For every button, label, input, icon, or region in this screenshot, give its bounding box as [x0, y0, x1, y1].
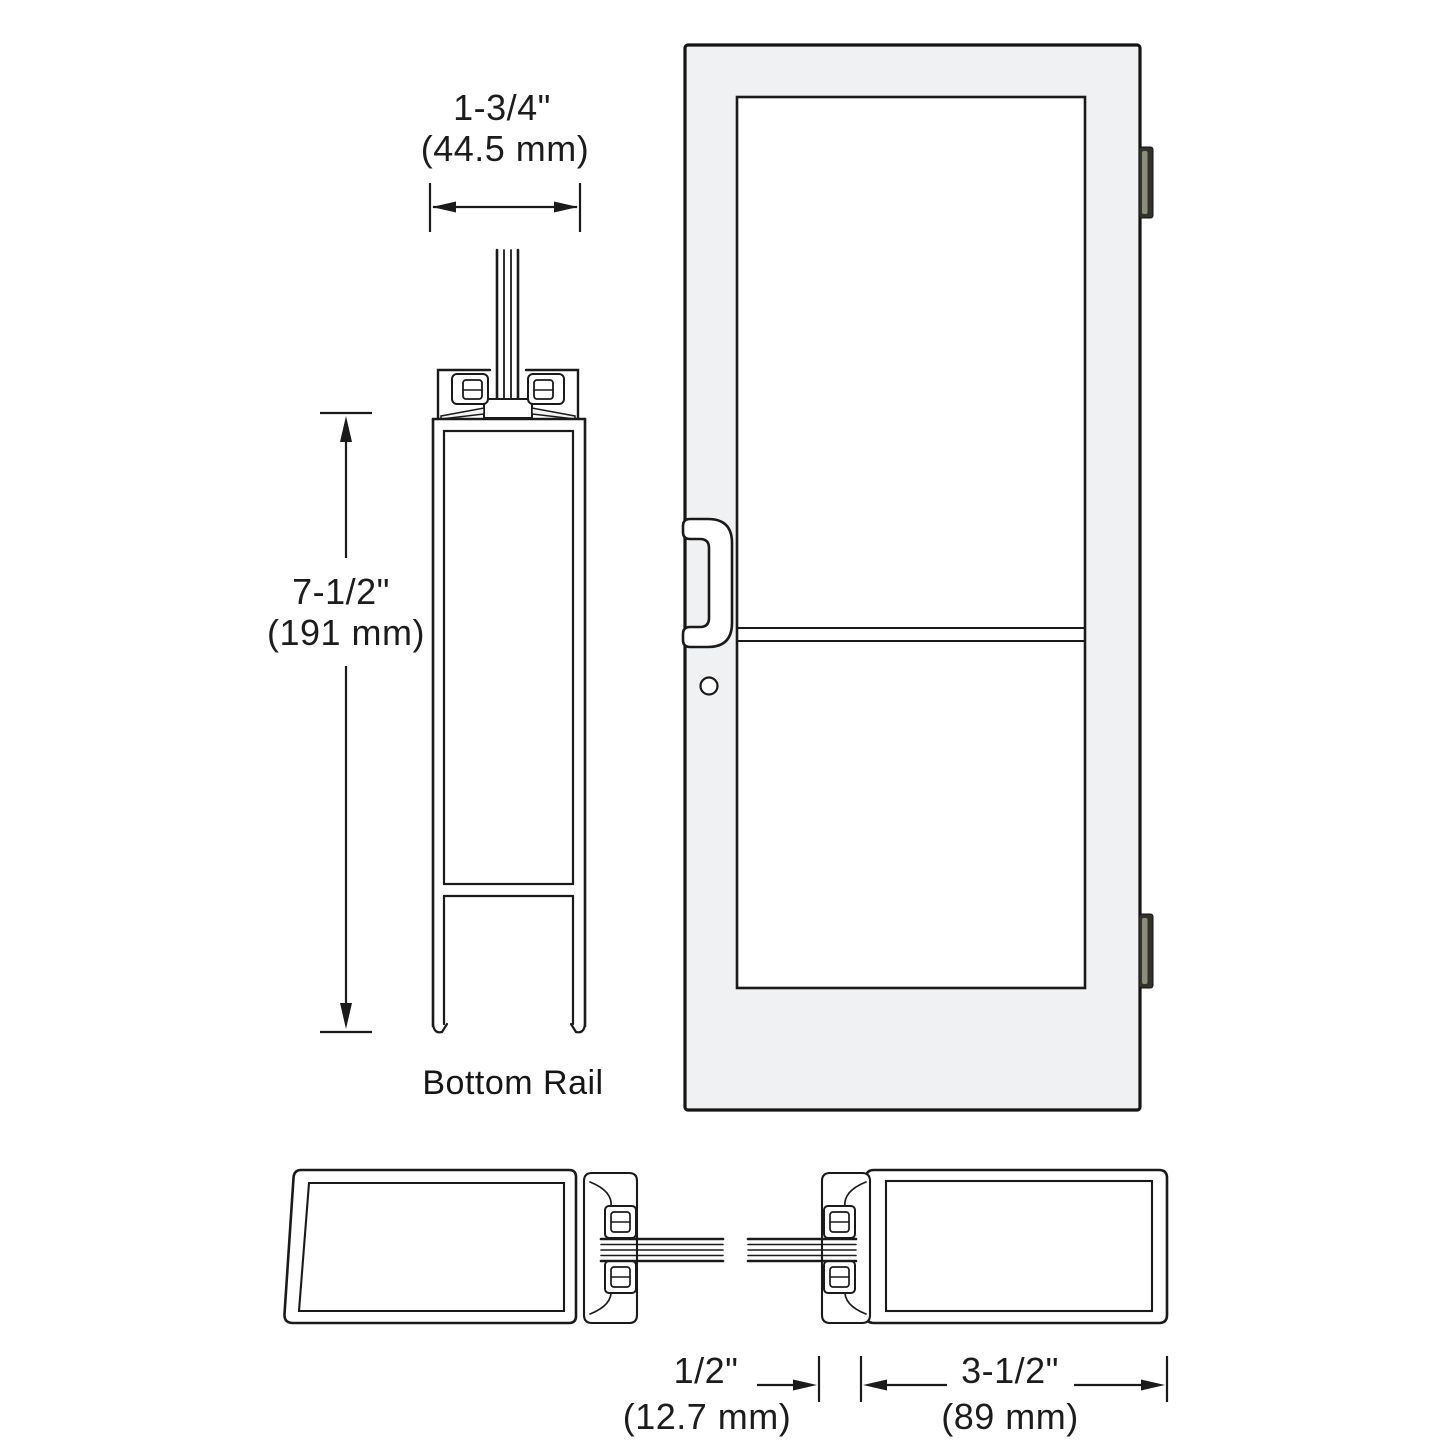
- lock-cylinder: [701, 678, 718, 695]
- stile-profile-right: [822, 1170, 1167, 1323]
- stile-dimension-imperial: 3-1/2": [961, 1353, 1059, 1389]
- stile-profile-left: [284, 1170, 637, 1323]
- stile-dimension-metric: (89 mm): [941, 1399, 1079, 1435]
- hinge-top: [1139, 147, 1153, 218]
- height-dimension-imperial: 7-1/2": [292, 574, 390, 610]
- arrowhead-down: [340, 1003, 352, 1029]
- drawing-linework: [0, 0, 1445, 1445]
- gap-dimension-metric: (12.7 mm): [623, 1399, 792, 1435]
- hinge-bottom: [1139, 914, 1153, 988]
- width-dimension-imperial: 1-3/4": [453, 90, 551, 126]
- glazing-pocket-right: [822, 1173, 870, 1323]
- rail-hollow-chamber: [444, 431, 573, 884]
- stile-section-view: [284, 1170, 1167, 1323]
- glazing-pocket: [438, 370, 578, 419]
- clamp-wedge-left: [441, 408, 484, 419]
- door-elevation-view: [683, 45, 1153, 1110]
- glass-section-lines: [497, 250, 518, 410]
- gap-dimension-imperial: 1/2": [674, 1353, 739, 1389]
- clamp-wedge-right: [532, 408, 575, 419]
- width-dimension: [430, 183, 580, 232]
- glazing-gasket-right: [528, 374, 564, 404]
- arrowhead-up: [340, 416, 352, 442]
- bottom-rail-section-view: [433, 250, 585, 1032]
- glass-plan-lines: [601, 1239, 856, 1261]
- arrowhead-right: [1141, 1380, 1165, 1391]
- door-glass: [737, 97, 1085, 988]
- glazing-gasket-left: [452, 374, 488, 404]
- rail-foot-left: [433, 1024, 447, 1032]
- bottom-rail-label: Bottom Rail: [422, 1066, 603, 1100]
- door-technical-drawing: 1-3/4" (44.5 mm) 7-1/2" (191 mm) Bottom …: [0, 0, 1445, 1445]
- height-dimension: [320, 413, 372, 1032]
- arrowhead-left: [863, 1380, 887, 1391]
- arrowhead-left: [432, 202, 456, 213]
- glazing-pocket-left: [584, 1173, 637, 1323]
- height-dimension-metric: (191 mm): [267, 615, 425, 651]
- arrowhead-right: [793, 1380, 817, 1391]
- arrowhead-right: [554, 202, 578, 213]
- rail-body: [433, 419, 585, 1032]
- setting-block: [484, 399, 532, 418]
- width-dimension-metric: (44.5 mm): [421, 131, 590, 167]
- rail-foot-right: [571, 1024, 585, 1032]
